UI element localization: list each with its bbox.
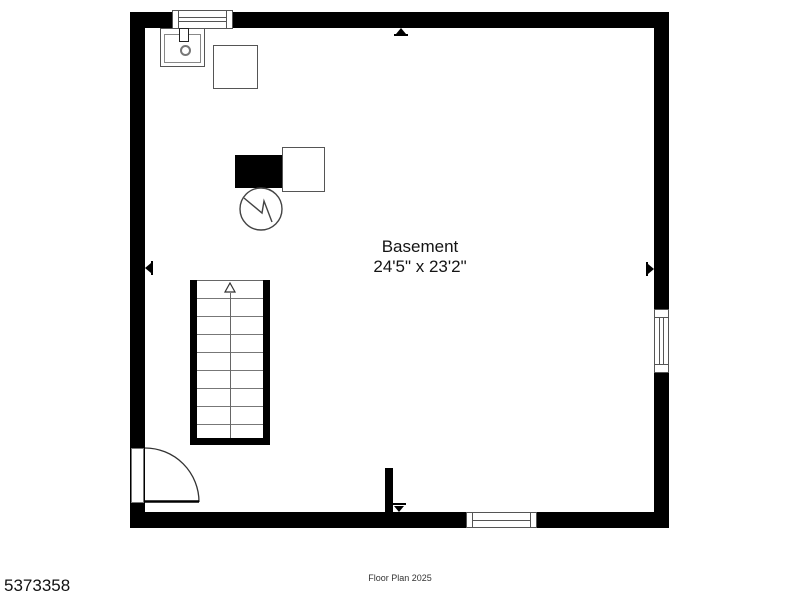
room-dimensions: 24'5" x 23'2"	[320, 257, 520, 277]
water-heater-icon	[239, 187, 283, 231]
window-frame-line	[226, 11, 227, 28]
storage-box	[213, 45, 258, 89]
dimension-marker-base	[646, 262, 648, 276]
sink-faucet-icon	[179, 28, 189, 42]
dimension-marker-base	[394, 34, 408, 36]
window-pane-line	[179, 17, 226, 18]
floor-plan-page: Basement 24'5" x 23'2" 5373358 Floor Pla…	[0, 0, 800, 600]
stair-center-line	[230, 293, 231, 438]
window-frame-line	[178, 11, 179, 28]
sink-drain-icon	[180, 45, 191, 56]
wall-stub	[385, 468, 393, 513]
stair-up-arrow-icon	[223, 282, 237, 294]
room-label: Basement 24'5" x 23'2"	[320, 237, 520, 276]
door-swing	[130, 440, 210, 510]
floor-plan-caption: Floor Plan 2025	[320, 573, 480, 583]
window-top	[172, 10, 233, 29]
window-right	[654, 309, 669, 373]
window-frame-line	[655, 364, 668, 365]
listing-id: 5373358	[4, 576, 70, 596]
wall-right	[654, 12, 669, 528]
window-pane-line	[179, 21, 226, 22]
window-pane-line	[659, 318, 660, 364]
wall-bottom	[130, 512, 669, 528]
window-bottom	[466, 512, 537, 528]
window-pane-line	[663, 318, 664, 364]
window-frame-line	[655, 317, 668, 318]
stair-stringer-left	[190, 280, 197, 445]
stair-stringer-right	[263, 280, 270, 445]
staircase	[190, 280, 270, 445]
utility-box	[282, 147, 325, 192]
water-heater-symbol	[239, 187, 283, 231]
sink-icon	[160, 28, 205, 67]
window-pane-line	[473, 520, 530, 521]
room-name: Basement	[320, 237, 520, 257]
door-arc	[145, 448, 199, 502]
window-frame-line	[530, 513, 531, 527]
dimension-marker-bottom-icon	[394, 506, 404, 512]
dimension-marker-base	[151, 261, 153, 275]
dimension-marker-right-icon	[648, 264, 654, 274]
furnace-unit	[235, 155, 283, 188]
dimension-marker-base	[392, 503, 406, 505]
